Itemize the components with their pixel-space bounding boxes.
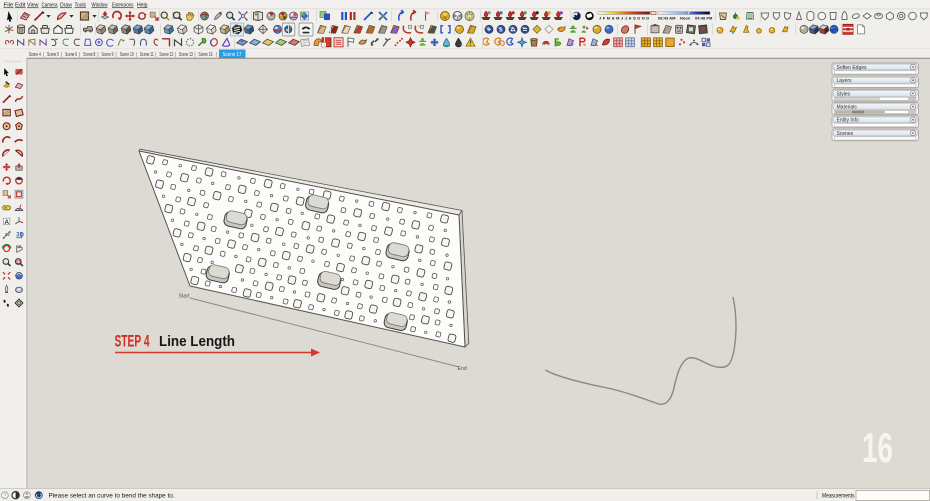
svg-text:A: A	[4, 219, 9, 226]
svg-text:Scene 11: Scene 11	[140, 52, 154, 58]
svg-text:Scene 10: Scene 10	[120, 52, 134, 58]
svg-text:Start: Start	[179, 293, 191, 299]
svg-text:End: End	[458, 366, 467, 372]
svg-text:|: |	[79, 52, 80, 58]
svg-text:Scene 6: Scene 6	[65, 52, 77, 58]
svg-text:04:48 PM: 04:48 PM	[695, 16, 713, 21]
svg-text:|: |	[216, 52, 217, 58]
svg-text:3D: 3D	[16, 232, 24, 238]
svg-text:16: 16	[862, 424, 893, 471]
svg-text:Scene 16: Scene 16	[199, 52, 213, 58]
svg-text:Scene 8: Scene 8	[83, 52, 95, 58]
svg-text:Camera: Camera	[42, 2, 59, 8]
svg-text:Noon: Noon	[680, 16, 691, 21]
svg-text:JFMAMJJASOND: JFMAMJJASOND	[599, 16, 651, 21]
svg-text:32: 32	[5, 232, 11, 237]
svg-text:|: |	[43, 52, 44, 58]
svg-text:STEP 4: STEP 4	[115, 332, 150, 351]
svg-text:|: |	[175, 52, 176, 58]
svg-text:Scene 17: Scene 17	[223, 52, 242, 58]
svg-text:|: |	[115, 52, 116, 58]
svg-text:Line Length: Line Length	[159, 333, 235, 350]
svg-text:Scene 13: Scene 13	[179, 52, 193, 58]
svg-text:Measurements: Measurements	[822, 492, 855, 499]
svg-text:|: |	[136, 52, 137, 58]
svg-text:Entity Info: Entity Info	[837, 118, 859, 124]
svg-text:?: ?	[3, 493, 6, 499]
svg-text:08:43 AM: 08:43 AM	[658, 16, 676, 21]
svg-text:Materials: Materials	[837, 105, 858, 111]
svg-text:Layers: Layers	[837, 78, 853, 84]
svg-text:Soften Edges: Soften Edges	[837, 65, 868, 71]
svg-text:Please select an curve to bend: Please select an curve to bend the shape…	[49, 493, 175, 500]
svg-text:|: |	[97, 52, 98, 58]
svg-text:|: |	[155, 52, 156, 58]
svg-text:Scene 5: Scene 5	[47, 52, 59, 58]
svg-text:Scene 4: Scene 4	[29, 52, 41, 58]
svg-text:|: |	[194, 52, 195, 58]
svg-text:Help: Help	[137, 2, 148, 8]
svg-text:View: View	[27, 2, 39, 8]
svg-text:File: File	[4, 2, 14, 8]
svg-text:|: |	[61, 52, 62, 58]
svg-text:Extensions: Extensions	[112, 2, 134, 8]
svg-text:Draw: Draw	[60, 2, 73, 8]
svg-text:Scenes: Scenes	[837, 131, 854, 137]
svg-text:S: S	[499, 27, 503, 33]
svg-text:Edit: Edit	[15, 2, 26, 8]
svg-text:Scene 9: Scene 9	[102, 52, 114, 58]
svg-text:Tools: Tools	[75, 2, 87, 8]
svg-text:Scene 12: Scene 12	[159, 52, 173, 58]
svg-text:Window: Window	[92, 2, 109, 8]
svg-text:Styles: Styles	[837, 91, 851, 97]
